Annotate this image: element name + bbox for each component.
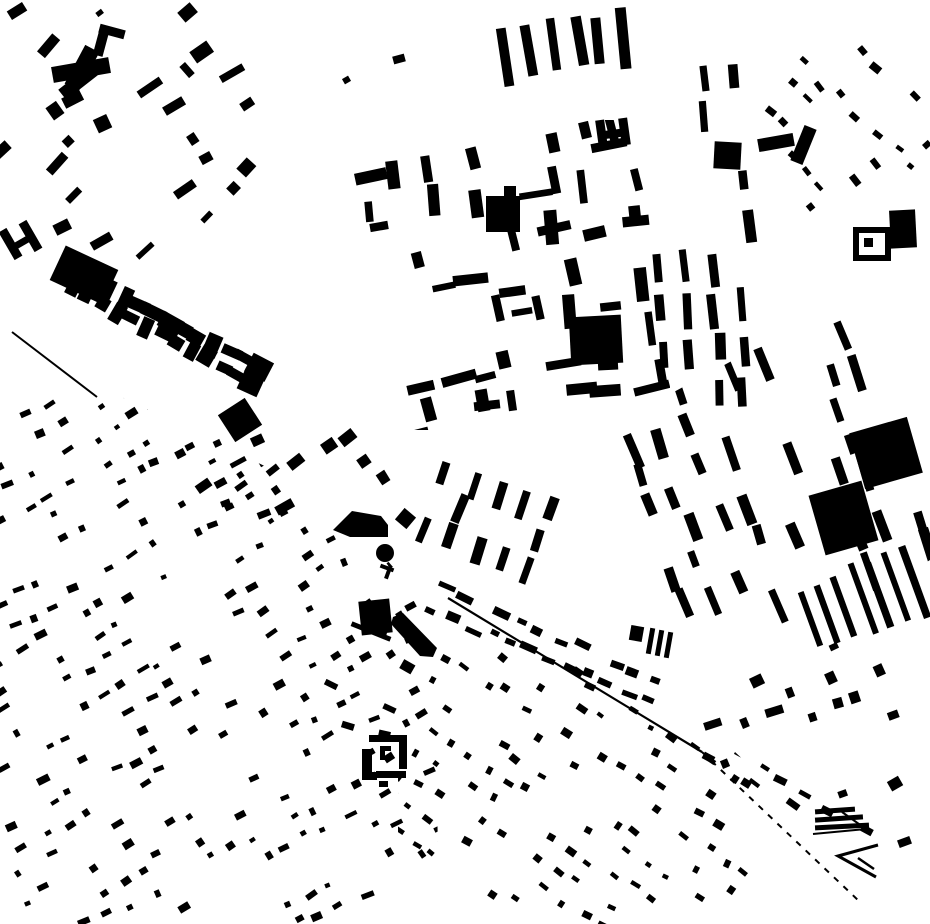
landmark-courtyard-farm-foot bbox=[362, 772, 377, 780]
figure-ground-map bbox=[0, 0, 930, 924]
landmark-north-blob-a bbox=[486, 196, 520, 232]
landmark-center-big-block-b bbox=[598, 359, 618, 370]
landmark-ne-filled-rect bbox=[889, 209, 917, 248]
building-footprint bbox=[659, 342, 668, 368]
landmark-north-blob-b bbox=[504, 186, 516, 198]
figure-ground-map-canvas bbox=[0, 0, 930, 924]
landmark-plaza-circle bbox=[376, 544, 394, 562]
landmark-ne-square-block bbox=[713, 141, 741, 169]
landmark-courtyard-farm-inner-b bbox=[380, 751, 385, 760]
building-footprint bbox=[682, 293, 692, 329]
building-footprint bbox=[715, 333, 726, 360]
landmark-courtyard-farm-inner-a bbox=[380, 746, 391, 751]
building-footprint bbox=[715, 380, 723, 406]
landmark-courtyard-farm-right bbox=[399, 735, 407, 769]
landmark-courtyard-farm-bottom bbox=[376, 771, 406, 778]
building-footprint bbox=[728, 64, 740, 89]
landmark-ne-courtyard-dot bbox=[864, 238, 873, 247]
landmark-courtyard-farm-bump bbox=[379, 781, 388, 787]
building-footprint bbox=[589, 384, 621, 398]
landmark-avenue-square bbox=[629, 625, 644, 642]
landmark-center-big-block-a bbox=[569, 315, 623, 366]
